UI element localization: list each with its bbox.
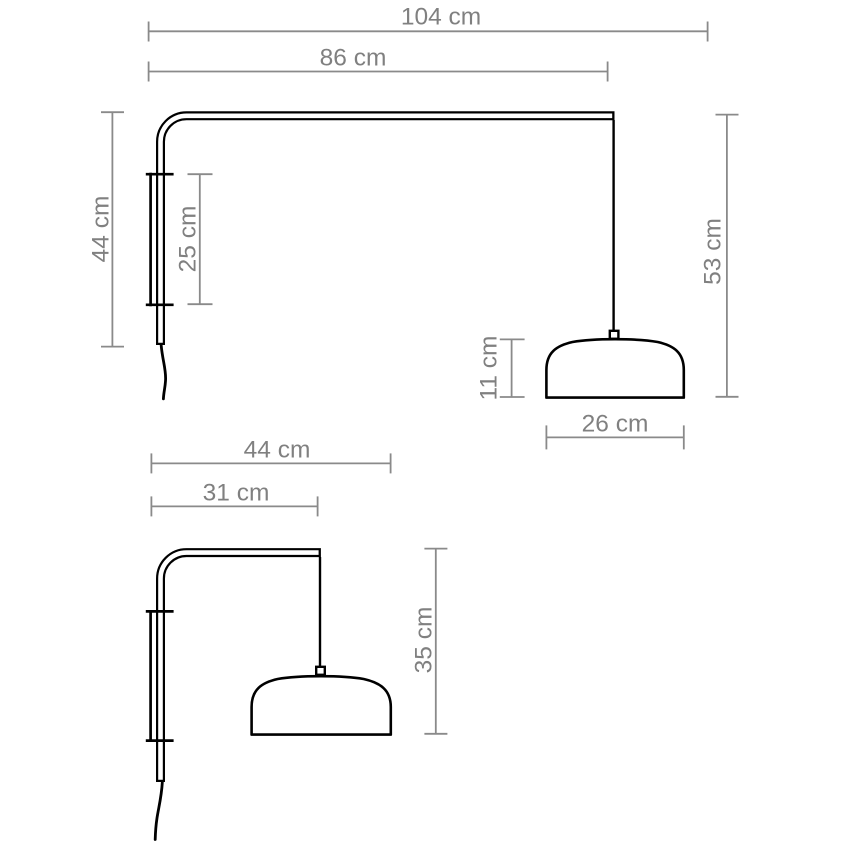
dim-large-shade-width: 26 cm — [546, 411, 683, 450]
dim-large-bracket-height: 25 cm — [175, 174, 213, 304]
dim-small-total-width: 44 cm — [151, 437, 390, 474]
large-lamp-shade — [546, 339, 683, 397]
dim-large-total-width: 104 cm — [149, 4, 708, 42]
large-lamp-power-cord — [161, 346, 165, 399]
small-lamp-drawing — [146, 553, 391, 840]
dim-small-arm-width: 31 cm — [151, 480, 317, 517]
small-lamp-canopy-connector — [316, 667, 325, 675]
large-lamp-canopy-connector — [610, 331, 619, 339]
large-lamp-arm-tube — [161, 116, 615, 345]
diagram-canvas: 104 cm 86 cm 44 cm 25 cm — [0, 0, 850, 850]
small-lamp-arm-tube-bore — [161, 553, 319, 780]
dimension-label-arm-width: 86 cm — [320, 45, 387, 72]
dim-large-shade-height: 11 cm — [476, 336, 525, 401]
dim-large-drop-height: 53 cm — [700, 115, 739, 397]
dimension-label-drop-height: 35 cm — [411, 607, 438, 674]
large-lamp-drawing — [146, 116, 684, 399]
dim-large-wall-height: 44 cm — [88, 112, 125, 346]
small-lamp-power-cord — [155, 783, 162, 840]
dimension-label-shade-width: 26 cm — [582, 411, 649, 438]
dim-small-drop-height: 35 cm — [411, 549, 448, 734]
dimension-label-wall-height: 44 cm — [88, 196, 115, 263]
small-lamp-arm-tube — [161, 553, 321, 782]
small-lamp-shade — [252, 676, 391, 734]
lamp-dimension-diagram: 104 cm 86 cm 44 cm 25 cm — [0, 0, 850, 850]
dimension-label-shade-height: 11 cm — [476, 336, 503, 401]
large-lamp-arm-tube-bore — [161, 116, 613, 343]
dimension-label-total-width: 104 cm — [401, 4, 481, 31]
dimension-label-total-width: 44 cm — [244, 437, 311, 464]
dimension-label-drop-height: 53 cm — [700, 218, 727, 285]
dim-large-arm-width: 86 cm — [149, 45, 608, 82]
dimension-label-arm-width: 31 cm — [203, 480, 270, 507]
dimension-label-bracket-height: 25 cm — [175, 206, 202, 273]
